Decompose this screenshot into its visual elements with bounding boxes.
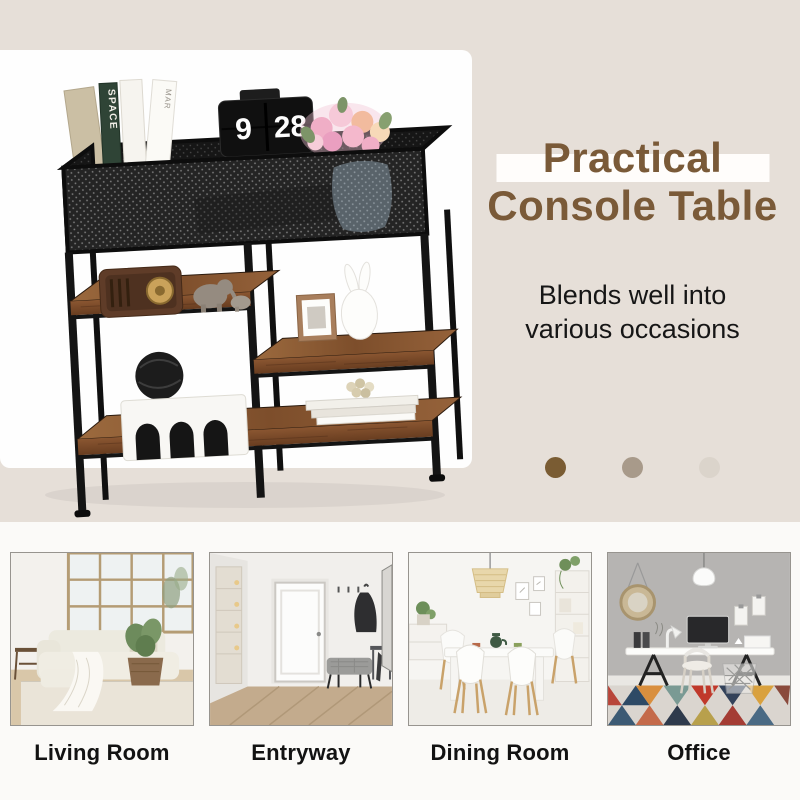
title-line-2: Console Table — [465, 182, 800, 230]
marketing-banner: SPACE MAR 9 28 — [0, 0, 800, 800]
pager-dot-2[interactable] — [622, 457, 643, 478]
arch-sculpture — [118, 347, 248, 460]
rabbit-figurine — [339, 261, 379, 340]
room-entryway: Entryway — [209, 552, 393, 800]
subtitle: Blends well into various occasions — [465, 278, 800, 346]
room-label-living-room: Living Room — [10, 740, 194, 766]
book-spine-space: SPACE — [105, 89, 118, 131]
pager-dot-3[interactable] — [699, 457, 720, 478]
office-photo — [607, 552, 791, 726]
sphere-decor — [134, 351, 184, 401]
geometric-rug — [608, 685, 790, 725]
entry-door — [271, 579, 328, 684]
rooms-section: Living Room — [0, 522, 800, 800]
room-label-office: Office — [607, 740, 791, 766]
flip-clock: 9 28 — [218, 87, 315, 158]
console-table-photo: SPACE MAR 9 28 — [0, 40, 470, 520]
pager-dots — [465, 457, 800, 478]
room-label-dining-room: Dining Room — [408, 740, 592, 766]
room-living-room: Living Room — [10, 552, 194, 800]
entryway-photo — [209, 552, 393, 726]
shelf-cabinet — [216, 567, 242, 684]
mirror-edge — [382, 565, 392, 672]
console-table: SPACE MAR 9 28 — [52, 64, 466, 518]
clock-hour: 9 — [234, 113, 252, 147]
vintage-radio — [99, 266, 183, 318]
living-room-photo — [10, 552, 194, 726]
window-grid — [68, 553, 193, 632]
picture-frame — [296, 294, 336, 342]
wire-basket — [723, 664, 757, 694]
room-dining-room: Dining Room — [408, 552, 592, 800]
glass-vase — [331, 159, 394, 233]
room-office: Office — [607, 552, 791, 800]
book-stack — [305, 375, 419, 425]
dining-room-photo — [408, 552, 592, 726]
pager-dot-1[interactable] — [545, 457, 566, 478]
hero-section: SPACE MAR 9 28 — [0, 0, 800, 522]
book-spine-mar: MAR — [162, 89, 173, 110]
room-label-entryway: Entryway — [209, 740, 393, 766]
title-line-1: Practical — [465, 134, 800, 182]
hero-copy: Practical Console Table Blends well into… — [465, 0, 800, 522]
